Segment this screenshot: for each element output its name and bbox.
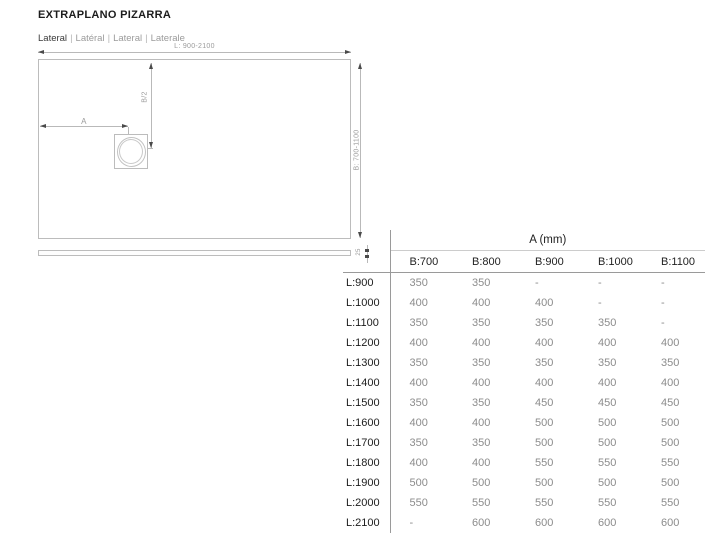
table-row: L:1600400400500500500 [343,413,705,433]
half-width-dimension-label: B/2 [142,91,149,102]
table-cell: 400 [516,373,579,393]
table-cell: - [579,273,642,294]
table-row: L:1400400400400400400 [343,373,705,393]
table-row: L:1000400400400-- [343,293,705,313]
tray-outline [38,59,351,239]
table-row: L:1300350350350350350 [343,353,705,373]
row-header: L:1700 [343,433,390,453]
table-row: L:2000550550550550550 [343,493,705,513]
table-title-row: A (mm) [343,230,705,251]
table-cell: 400 [390,453,453,473]
table-cell: 450 [516,393,579,413]
table-cell: 550 [453,493,516,513]
table-cell: 500 [579,473,642,493]
table-cell: 550 [390,493,453,513]
row-header: L:1400 [343,373,390,393]
length-dimension-label: L: 900-2100 [38,43,351,50]
row-header: L:2000 [343,493,390,513]
dimension-table-wrapper: A (mm) B:700B:800B:900B:1000B:1100 L:900… [343,230,705,533]
table-body: L:900350350---L:1000400400400--L:1100350… [343,273,705,534]
table-row: L:900350350--- [343,273,705,294]
table-cell: 400 [453,333,516,353]
dim-arrow-icon [149,63,153,69]
table-cell: 350 [579,313,642,333]
table-cell: 550 [516,453,579,473]
table-cell: 400 [390,413,453,433]
table-cell: - [642,293,705,313]
corner-cell [343,251,390,273]
table-row: L:2100-600600600600 [343,513,705,533]
drain-icon [114,134,148,169]
table-row: L:1700350350500500500 [343,433,705,453]
drain-inner-ring [119,139,143,164]
corner-cell [343,230,390,251]
column-header: B:700 [390,251,453,273]
row-header: L:1800 [343,453,390,473]
table-cell: 350 [390,353,453,373]
table-cell: 600 [579,513,642,533]
row-header: L:1000 [343,293,390,313]
table-cell: 350 [390,313,453,333]
page-title: EXTRAPLANO PIZARRA [38,9,171,21]
table-cell: 350 [390,393,453,413]
table-cell: 550 [516,493,579,513]
table-cell: 550 [579,493,642,513]
table-cell: 450 [579,393,642,413]
table-cell: 400 [516,333,579,353]
table-cell: 400 [453,373,516,393]
table-row: L:1500350350450450450 [343,393,705,413]
table-cell: 350 [453,313,516,333]
column-header: B:1100 [642,251,705,273]
row-header: L:1500 [343,393,390,413]
table-cell: - [390,513,453,533]
dim-arrow-icon [345,50,351,54]
table-cell: 600 [516,513,579,533]
table-cell: 400 [453,293,516,313]
table-cell: 500 [579,413,642,433]
table-cell: 600 [453,513,516,533]
row-header: L:1600 [343,413,390,433]
table-cell: 600 [642,513,705,533]
table-cell: 400 [579,373,642,393]
table-cell: 400 [642,373,705,393]
table-cell: 400 [516,293,579,313]
table-cell: 500 [516,473,579,493]
table-row: L:1100350350350350- [343,313,705,333]
table-cell: 400 [390,293,453,313]
column-header-row: B:700B:800B:900B:1000B:1100 [343,251,705,273]
table-cell: 350 [453,353,516,373]
table-cell: 400 [453,413,516,433]
table-cell: 350 [390,433,453,453]
table-cell: 350 [516,313,579,333]
table-cell: - [642,313,705,333]
table-cell: 500 [642,433,705,453]
table-cell: 500 [579,433,642,453]
table-cell: 350 [453,393,516,413]
row-header: L:1300 [343,353,390,373]
table-cell: 350 [579,353,642,373]
table-cell: 350 [642,353,705,373]
half-width-dimension-line [151,63,152,148]
table-cell: - [516,273,579,294]
row-header: L:1200 [343,333,390,353]
dim-arrow-icon [40,124,46,128]
table-cell: 350 [390,273,453,294]
width-dimension-label: B: 700-1100 [354,130,361,171]
table-cell: 500 [516,433,579,453]
table-cell: 500 [516,413,579,433]
row-header: L:1100 [343,313,390,333]
table-cell: - [642,273,705,294]
offset-dimension-label: A [40,117,128,126]
table-cell: 400 [453,453,516,473]
table-cell: 550 [642,493,705,513]
dim-arrow-icon [38,50,44,54]
column-header: B:1000 [579,251,642,273]
table-cell: 500 [642,413,705,433]
table-cell: 500 [453,473,516,493]
table-cell: 500 [642,473,705,493]
length-dimension-line [38,52,351,53]
row-header: L:2100 [343,513,390,533]
drain-outer-ring [117,137,146,167]
a-dimension-table: A (mm) B:700B:800B:900B:1000B:1100 L:900… [343,230,705,533]
table-cell: 500 [390,473,453,493]
table-cell: 350 [516,353,579,373]
table-cell: 550 [642,453,705,473]
table-title: A (mm) [390,230,705,251]
row-header: L:1900 [343,473,390,493]
table-cell: 350 [453,273,516,294]
table-row: L:1800400400550550550 [343,453,705,473]
dim-arrow-icon [358,63,362,69]
table-row: L:1900500500500500500 [343,473,705,493]
datasheet-page: EXTRAPLANO PIZARRA Lateral|Latéral|Later… [0,0,720,540]
offset-dimension-line [40,126,128,127]
table-cell: 450 [642,393,705,413]
table-cell: 350 [453,433,516,453]
table-cell: 400 [390,373,453,393]
row-header: L:900 [343,273,390,294]
column-header: B:800 [453,251,516,273]
table-cell: 400 [642,333,705,353]
table-cell: 400 [390,333,453,353]
column-header: B:900 [516,251,579,273]
tray-side-profile [38,250,351,256]
table-row: L:1200400400400400400 [343,333,705,353]
table-cell: - [579,293,642,313]
table-cell: 550 [579,453,642,473]
table-cell: 400 [579,333,642,353]
